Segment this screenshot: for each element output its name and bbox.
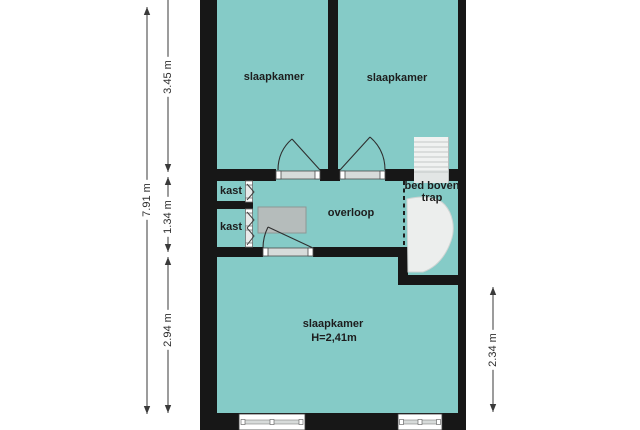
furniture — [258, 207, 306, 233]
wall-mid-seg1 — [217, 169, 276, 181]
wall-niche-bottom — [398, 275, 458, 285]
room-label-landing: overloop — [328, 207, 374, 219]
closet-doors-icon — [246, 181, 255, 247]
door-threshold — [340, 171, 385, 179]
room-label-bed-above-stairs: bed boven trap — [404, 180, 459, 204]
stairs-icon — [414, 137, 449, 183]
door-threshold — [263, 248, 313, 256]
wall-landing-seg1 — [200, 247, 263, 257]
wall-left — [200, 0, 217, 430]
room-label-closet-top: kast — [220, 185, 242, 197]
wall-mid-seg2 — [320, 169, 340, 181]
dimension-label-upper: 3.45 m — [162, 57, 174, 97]
dimension-label-total-height: 7.91 m — [141, 180, 153, 220]
dimension-label-lower: 2.94 m — [162, 310, 174, 350]
dimension-label-right: 2.34 m — [487, 330, 499, 370]
room-label-bedroom-bottom: slaapkamer — [303, 318, 364, 330]
window — [239, 414, 305, 430]
floorplan-drawing — [0, 0, 640, 430]
floorplan: slaapkamer slaapkamer kast kast overloop… — [0, 0, 640, 430]
room-label-closet-bottom: kast — [220, 221, 242, 233]
wall-right — [458, 0, 466, 430]
wall-bedroom-divider — [328, 0, 338, 181]
door-threshold — [276, 171, 320, 179]
room-label-bedroom-top-left: slaapkamer — [244, 71, 305, 83]
dimension-label-middle: 1.34 m — [162, 197, 174, 237]
room-height-label: H=2,41m — [311, 332, 357, 344]
room-label-bedroom-top-right: slaapkamer — [367, 72, 428, 84]
window — [398, 414, 442, 430]
wall-landing-seg2 — [313, 247, 403, 257]
